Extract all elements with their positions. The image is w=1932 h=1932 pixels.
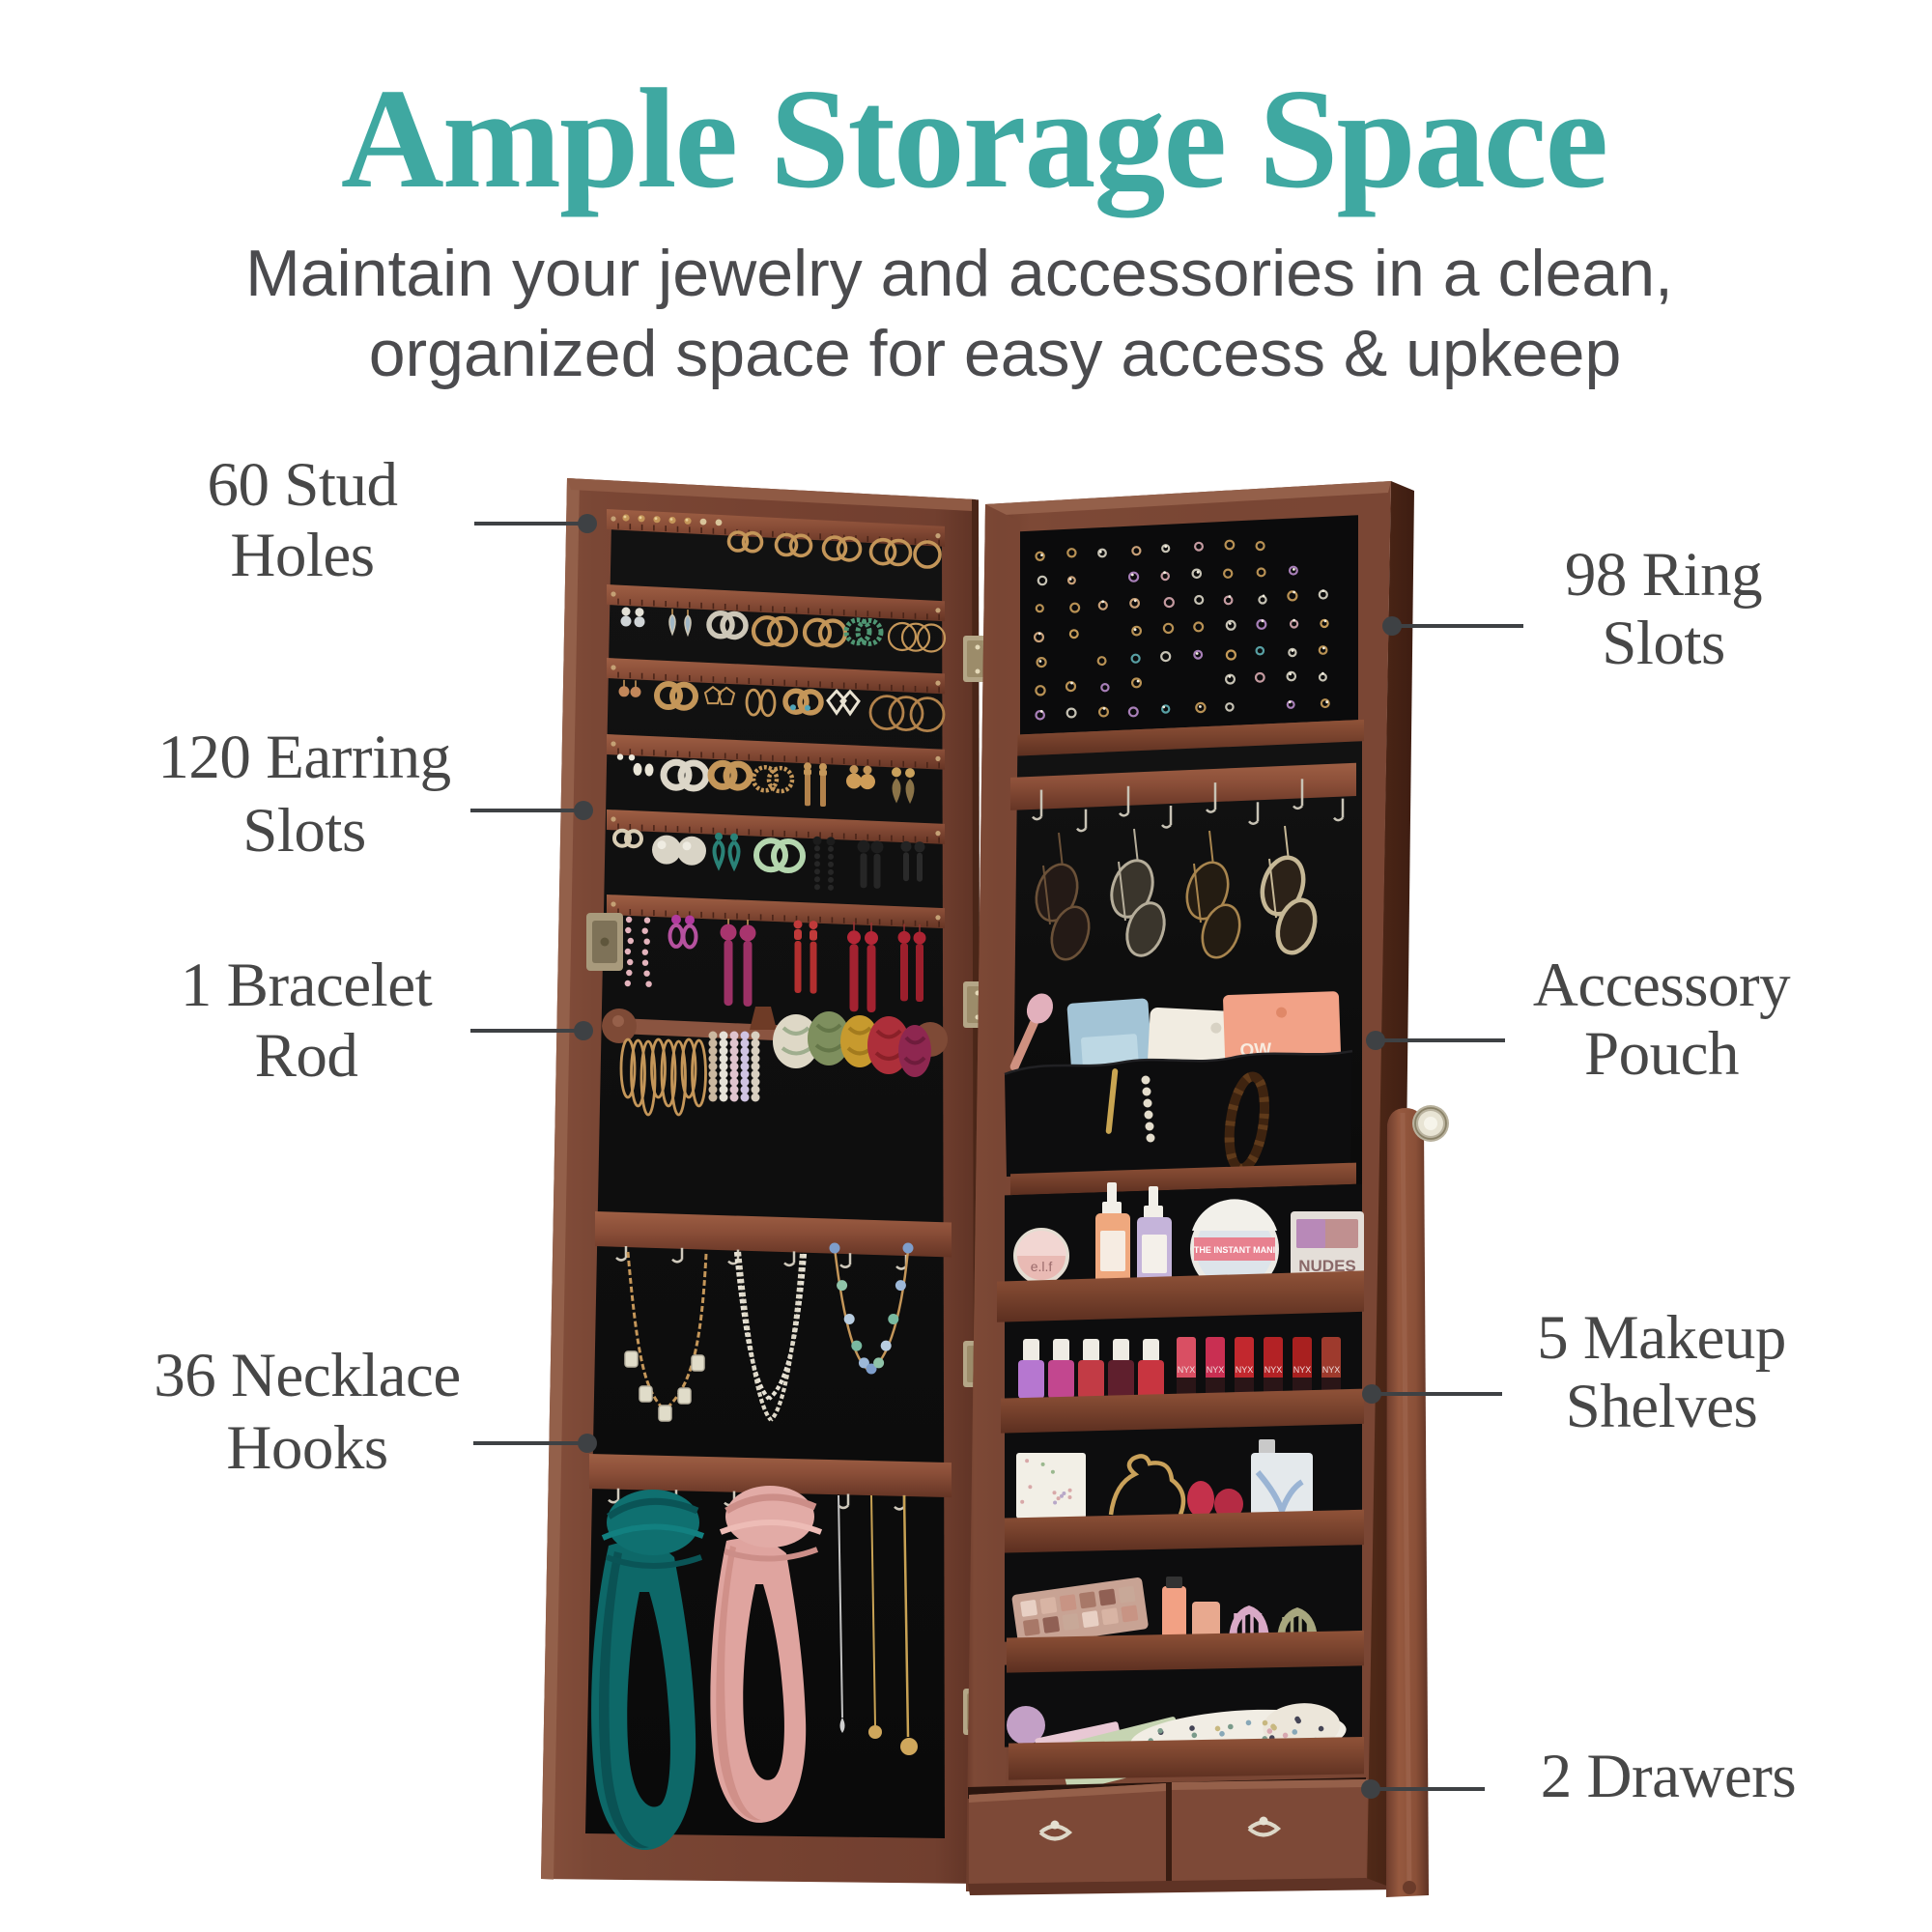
svg-text:THE INSTANT MANI: THE INSTANT MANI [1194,1245,1275,1255]
svg-text:NYX: NYX [1207,1365,1225,1375]
svg-text:NYX: NYX [1236,1365,1254,1375]
svg-text:organized space for easy acces: organized space for easy access & upkeep [369,317,1622,390]
svg-text:Slots: Slots [242,796,366,866]
svg-text:1 Bracelet: 1 Bracelet [181,951,433,1020]
svg-text:Hooks: Hooks [226,1413,387,1483]
svg-text:Ample Storage Space: Ample Storage Space [341,60,1606,218]
svg-text:Shelves: Shelves [1566,1372,1758,1441]
svg-text:Rod: Rod [255,1021,358,1091]
svg-text:NYX: NYX [1322,1365,1341,1375]
svg-text:5 Makeup: 5 Makeup [1537,1303,1786,1373]
svg-text:60 Stud: 60 Stud [208,450,398,520]
svg-text:2 Drawers: 2 Drawers [1541,1742,1796,1811]
svg-text:NYX: NYX [1178,1365,1196,1375]
svg-text:Accessory: Accessory [1533,951,1791,1020]
svg-text:NYX: NYX [1264,1365,1283,1375]
svg-text:Pouch: Pouch [1584,1019,1739,1089]
svg-text:Slots: Slots [1602,609,1725,678]
svg-text:Holes: Holes [230,521,374,590]
svg-text:98 Ring: 98 Ring [1565,540,1762,610]
svg-text:e.l.f: e.l.f [1031,1259,1053,1274]
svg-text:NYX: NYX [1293,1365,1312,1375]
svg-text:36 Necklace: 36 Necklace [154,1341,461,1410]
svg-text:Maintain your jewelry and acce: Maintain your jewelry and accessories in… [245,237,1673,310]
svg-text:120 Earring: 120 Earring [157,723,450,792]
